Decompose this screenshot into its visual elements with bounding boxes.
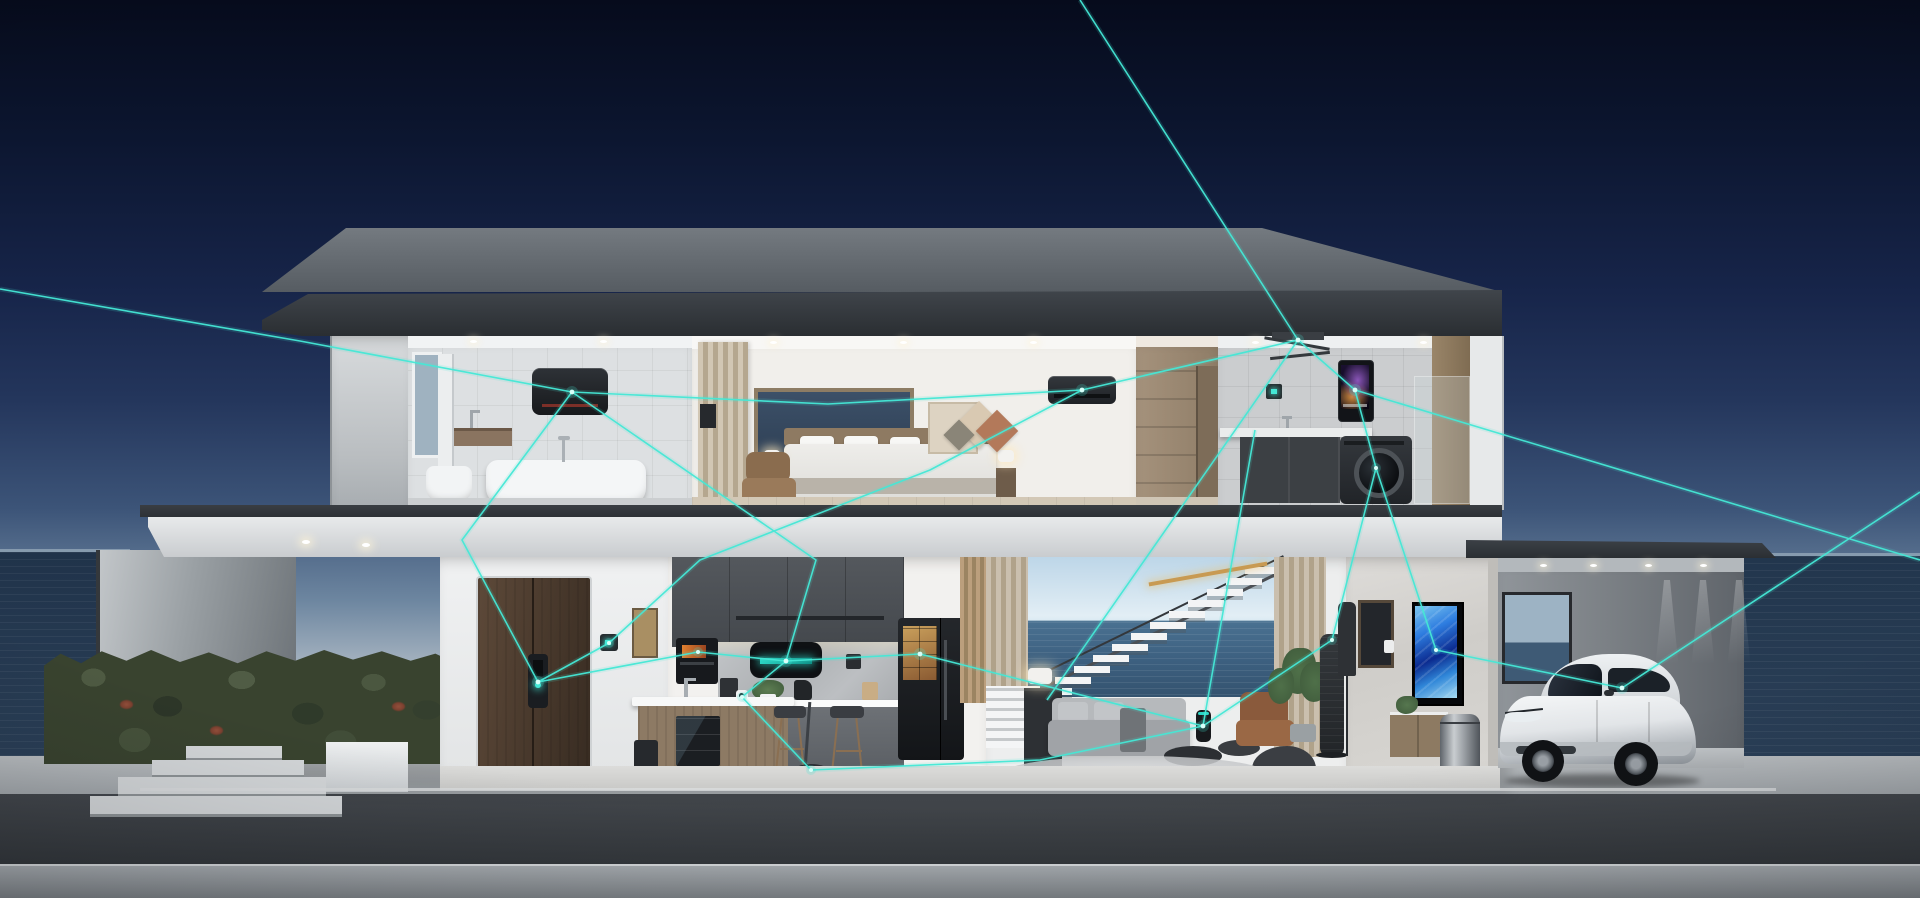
network-lines xyxy=(0,0,1920,770)
network-glow xyxy=(0,0,1920,770)
iot-network-overlay xyxy=(0,0,1920,898)
smart-home-render xyxy=(0,0,1920,898)
